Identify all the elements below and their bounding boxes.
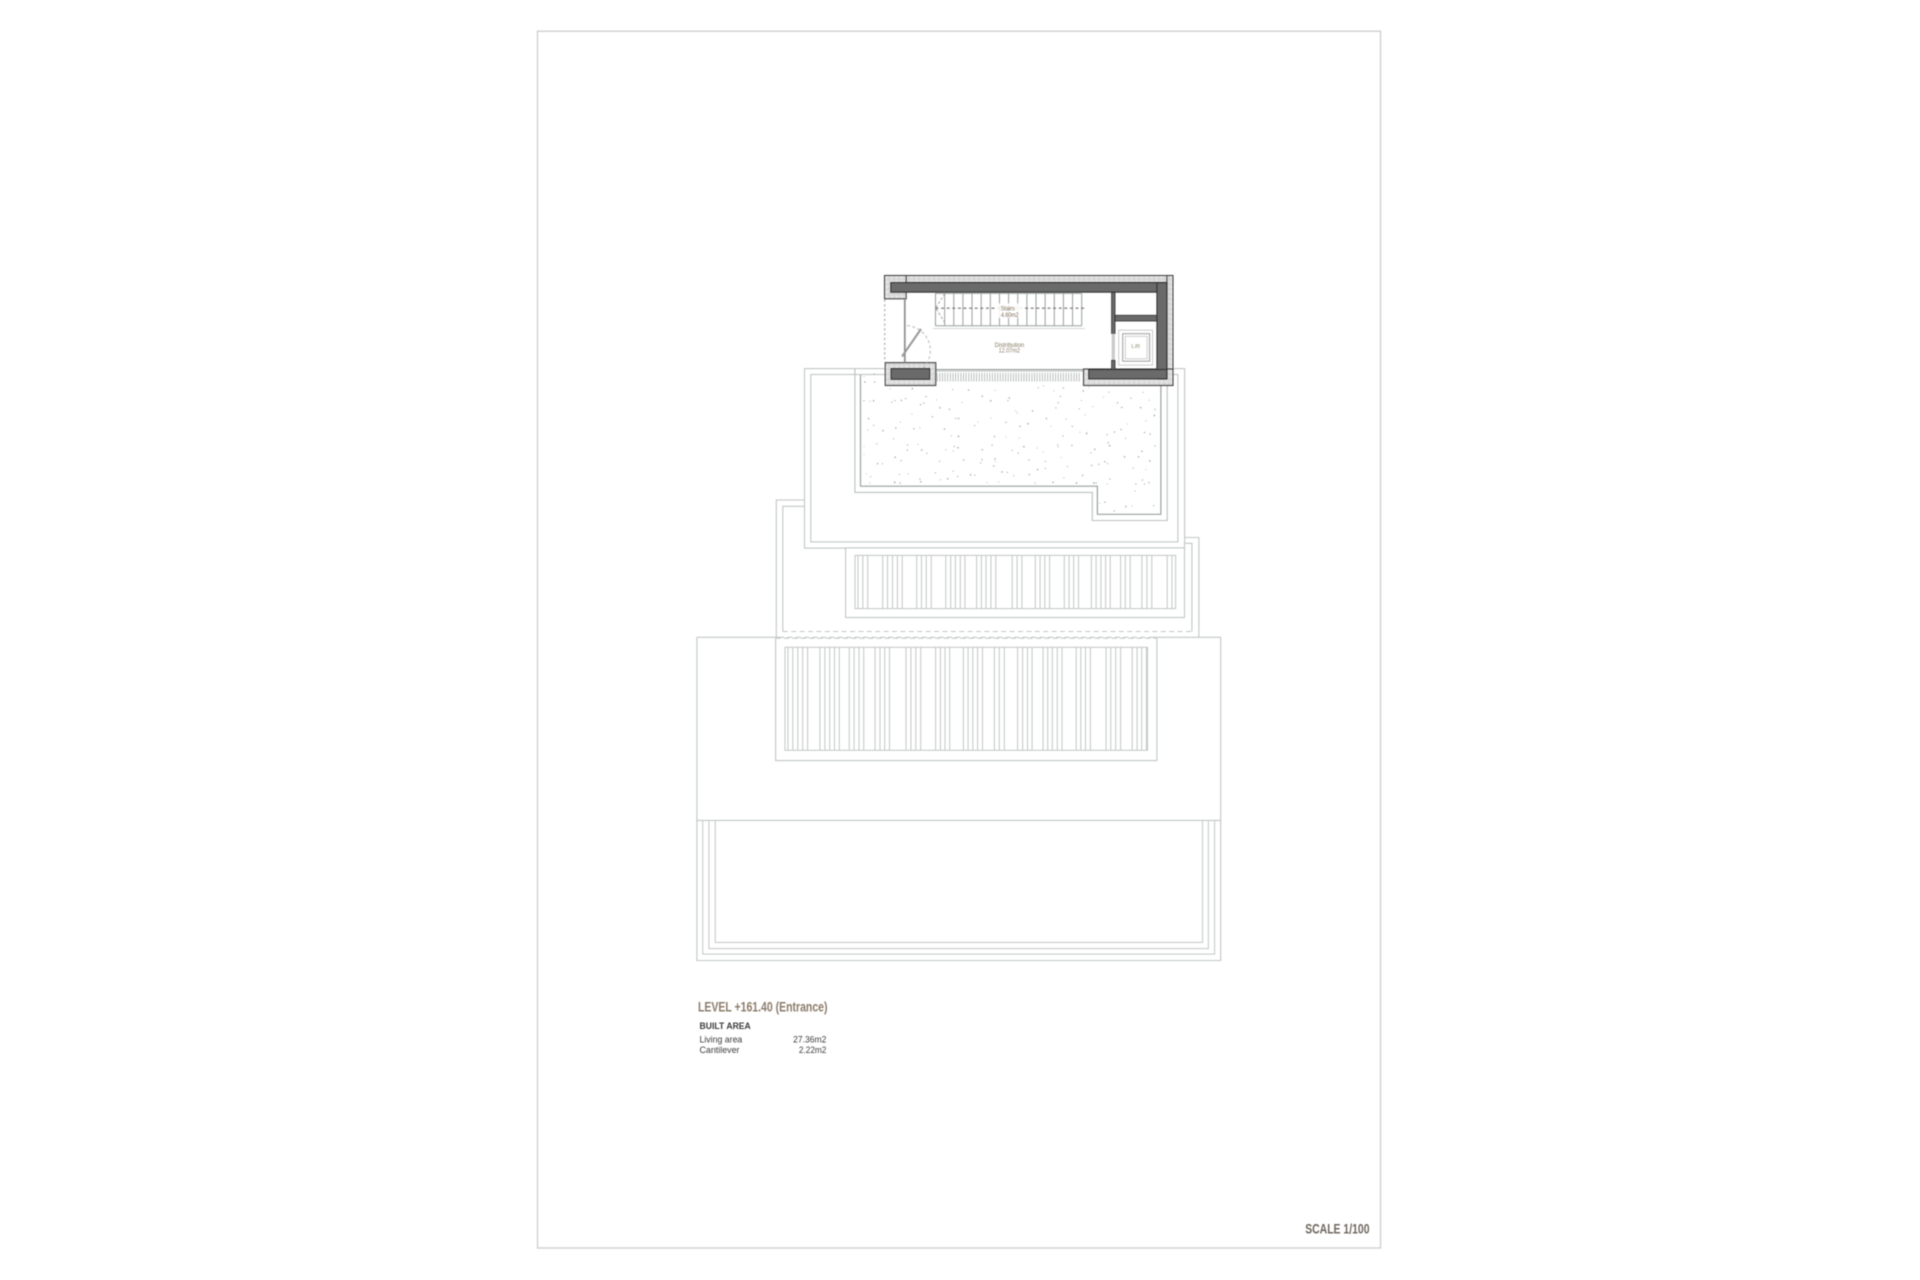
- svg-text:Stairs: Stairs: [1001, 306, 1015, 312]
- svg-text:LEVEL +161.40 (Entrance): LEVEL +161.40 (Entrance): [698, 999, 828, 1015]
- svg-text:Living area: Living area: [700, 1035, 743, 1045]
- svg-text:SCALE 1/100: SCALE 1/100: [1305, 1222, 1369, 1237]
- svg-text:27.36m2: 27.36m2: [793, 1035, 826, 1045]
- svg-text:Lift: Lift: [1131, 344, 1140, 350]
- svg-text:Cantilever: Cantilever: [700, 1045, 740, 1055]
- svg-text:12.07m2: 12.07m2: [999, 348, 1021, 355]
- svg-text:BUILT AREA: BUILT AREA: [700, 1021, 751, 1032]
- svg-text:2.22m2: 2.22m2: [799, 1045, 827, 1055]
- svg-text:4.60m2: 4.60m2: [1001, 313, 1019, 319]
